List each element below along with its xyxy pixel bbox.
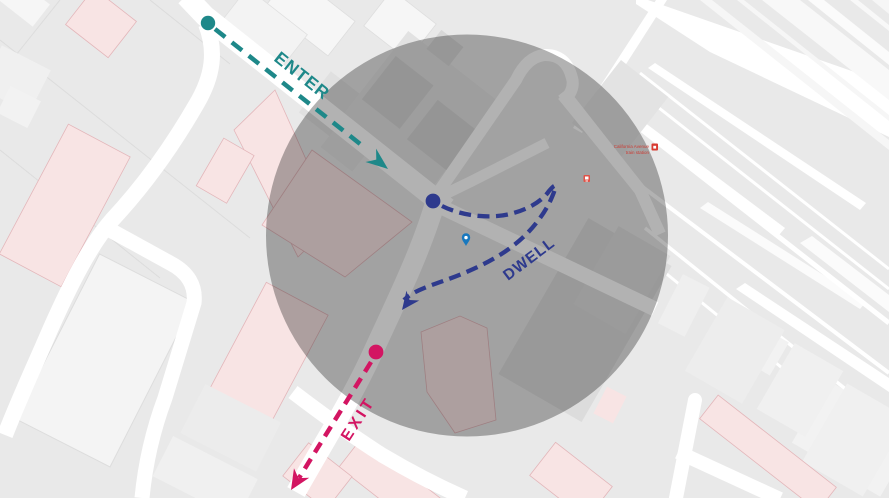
svg-text:train station: train station	[626, 150, 650, 155]
svg-text:California Avenue: California Avenue	[614, 144, 650, 149]
